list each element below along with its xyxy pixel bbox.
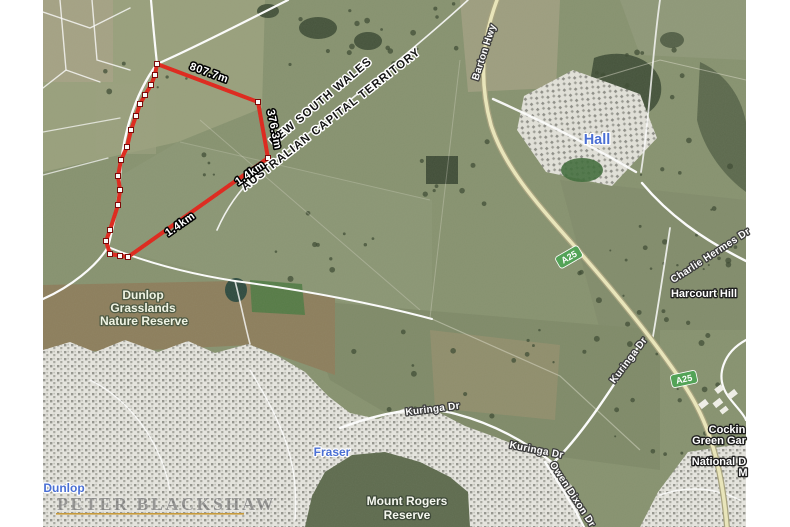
locality-label-dunlop: Dunlop: [43, 481, 84, 495]
satellite-grain: [43, 0, 746, 527]
park-label-dunlop-grasslands-3: Nature Reserve: [100, 314, 188, 328]
place-label-green-gardens-clipped: Green Gar: [692, 435, 747, 447]
locality-label-hall: Hall: [584, 132, 611, 148]
watermark-gold-line: [56, 513, 244, 515]
park-label-mount-rogers-1: Mount Rogers: [367, 494, 448, 508]
park-label-dunlop-grasslands-1: Dunlop: [122, 288, 163, 302]
park-label-dunlop-grasslands-2: Grasslands: [110, 301, 176, 315]
place-label-harcourt-hill: Harcourt Hill: [671, 288, 737, 300]
map-canvas: [43, 0, 746, 527]
watermark-text: PETER BLACKSHAW: [57, 494, 276, 514]
place-label-museum-clipped: M: [738, 467, 747, 479]
agency-watermark: PETER BLACKSHAW: [56, 494, 276, 515]
park-label-mount-rogers-2: Reserve: [384, 508, 431, 522]
listing-map-image: A25A25 NEW SOUTH WALESAUSTRALIAN CAPITAL…: [0, 0, 790, 527]
locality-label-fraser: Fraser: [314, 445, 351, 459]
satellite-map: A25A25 NEW SOUTH WALESAUSTRALIAN CAPITAL…: [0, 0, 790, 527]
